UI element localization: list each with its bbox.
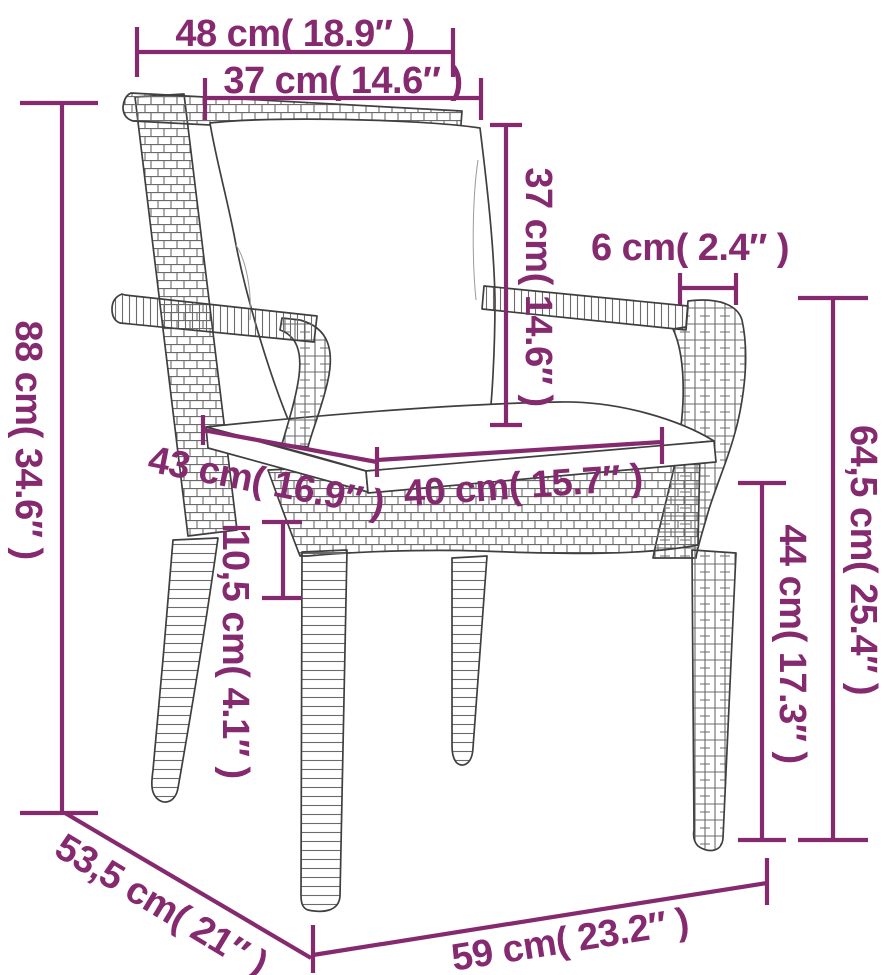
chair-front-right-leg	[452, 556, 487, 765]
label-total-depth: 53,5 cm( 21″ )	[48, 826, 275, 975]
chair-rear-right-leg	[692, 550, 736, 851]
chair-back-cushion	[210, 119, 495, 439]
label-seat-height: 44 cm( 17.3″ )	[771, 524, 813, 763]
label-total-width: 59 cm( 23.2″ )	[449, 901, 692, 975]
chair-dimension-diagram: 48 cm( 18.9″ ) 37 cm( 14.6″ ) 88 cm( 34.…	[0, 0, 891, 975]
label-total-height: 88 cm( 34.6″ )	[7, 320, 49, 559]
dimension-diagram-canvas: 48 cm( 18.9″ ) 37 cm( 14.6″ ) 88 cm( 34.…	[0, 0, 891, 975]
label-armrest-width: 6 cm( 2.4″ )	[591, 227, 789, 269]
label-armrest-height: 64,5 cm( 25.4″ )	[842, 425, 884, 695]
chair-rear-left-leg	[152, 538, 218, 802]
chair-right-armrest	[482, 286, 688, 330]
label-top-rail-width: 48 cm( 18.9″ )	[175, 13, 414, 55]
label-backrest-width: 37 cm( 14.6″ )	[223, 60, 462, 102]
label-cushion-thickness: 10,5 cm( 4.1″ )	[214, 529, 256, 778]
chair-front-left-leg	[301, 550, 347, 911]
label-backrest-height: 37 cm( 14.6″ )	[517, 167, 559, 406]
